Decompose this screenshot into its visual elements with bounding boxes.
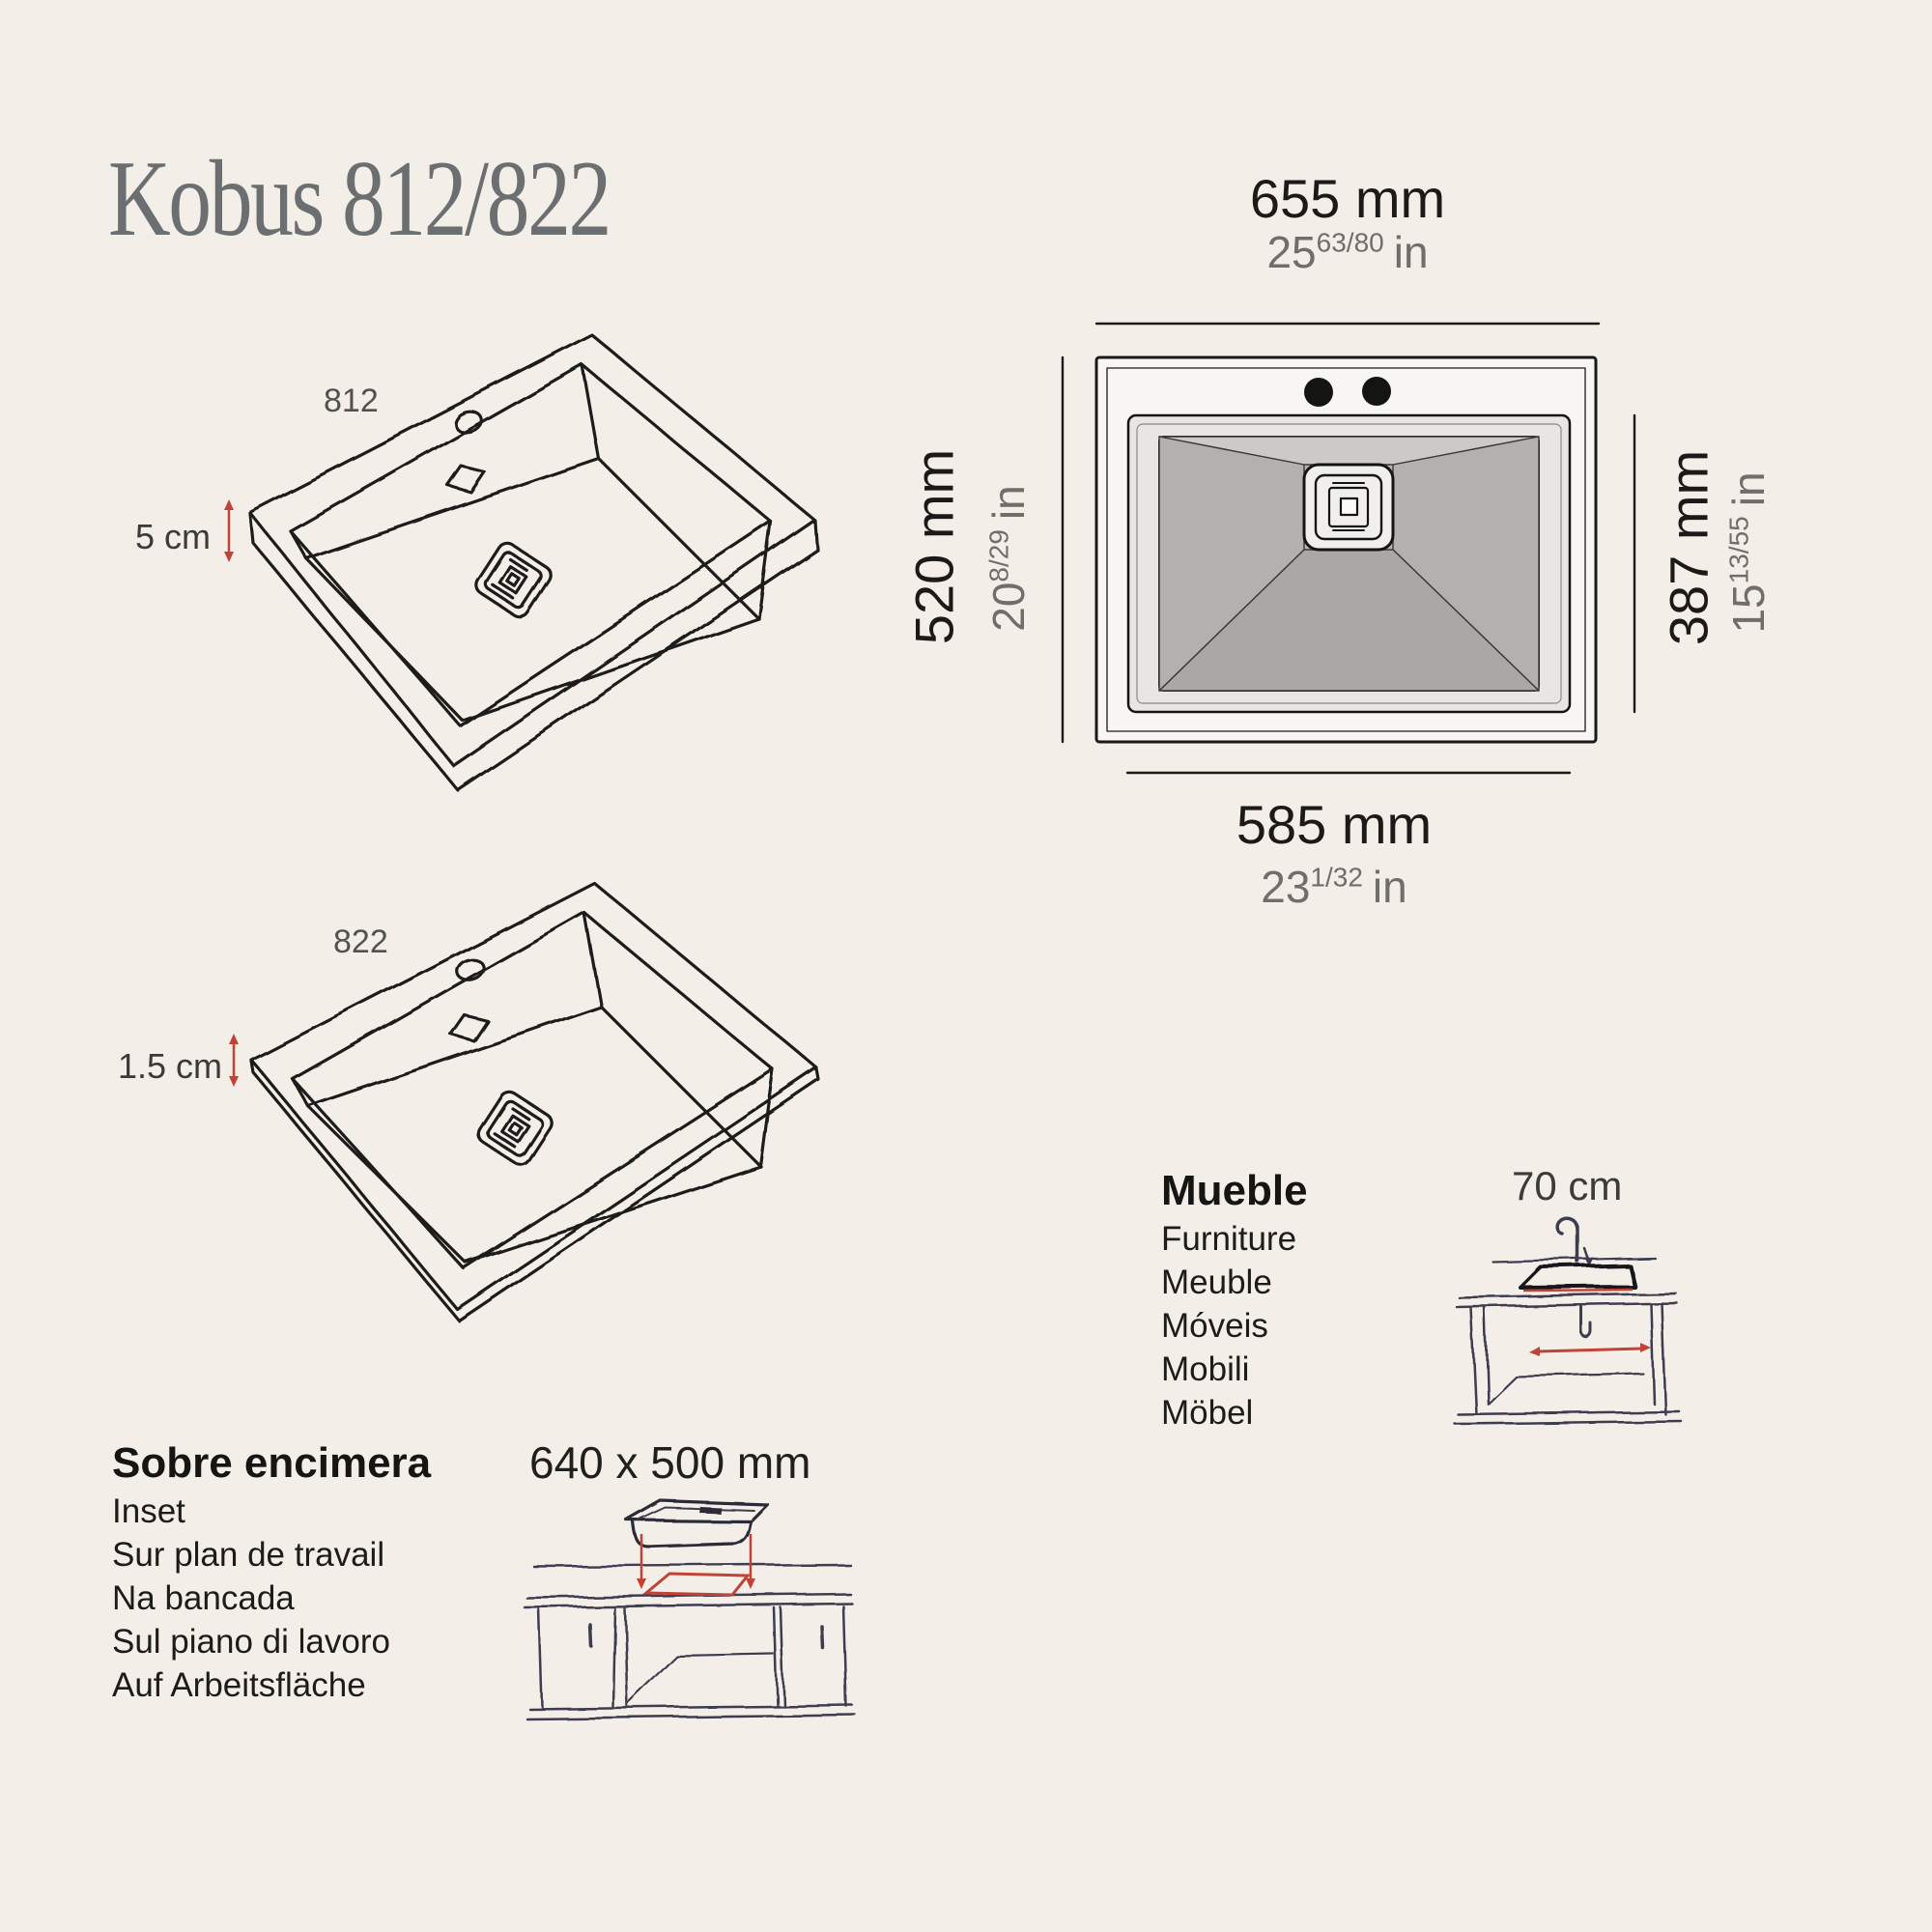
countertop-line [534,1565,850,1567]
dim-left-mm: 520 mm [903,449,966,644]
sink-profile-red-line [1523,1290,1633,1291]
left-door-handle [590,1625,591,1646]
edge-height-822: 1.5 cm [97,1046,222,1087]
furniture-heading: Mueble [1161,1167,1308,1215]
overflow-slot-icon [448,467,485,493]
top-view-diagram [1063,324,1634,773]
inset-item: Inset [112,1490,390,1533]
inset-item: Sur plan de travail [112,1533,390,1577]
dim-bottom-mm: 585 mm [1097,793,1571,856]
dim-top-mm: 655 mm [1096,167,1599,230]
furniture-width-label: 70 cm [1512,1163,1622,1209]
cabinet-interior [1488,1374,1643,1404]
inset-item: Auf Arbeitsfläche [112,1663,390,1707]
cabinet-top [1457,1293,1677,1307]
furniture-item: Furniture [1161,1217,1296,1261]
drain-icon [1304,465,1393,550]
faucet-hole-icon [1362,377,1391,406]
cabinet-opening [624,1607,777,1706]
model-label-812: 812 [324,383,379,420]
right-door-handle [822,1627,823,1648]
height-arrow-822 [229,1034,239,1087]
inset-heading: Sobre encimera [112,1439,431,1488]
edge-band-822 [251,1061,818,1321]
furniture-item: Móveis [1161,1304,1296,1348]
dim-top-in: 2563/80in [1096,226,1599,278]
cabinet-right-leg [1651,1303,1665,1414]
inset-items: Inset Sur plan de travail Na bancada Sul… [112,1490,390,1707]
cutout-size-label: 640 x 500 mm [529,1436,810,1489]
model-label-822: 822 [333,923,388,961]
dim-right-mm: 387 mm [1658,450,1720,645]
faucet-icon [1558,1219,1578,1263]
furniture-sketch [1455,1219,1681,1424]
cabinet-left-leg [1471,1307,1488,1414]
countertop-line [1492,1258,1655,1262]
edge-band-812 [249,513,816,790]
cabinet-bottom [1455,1411,1681,1424]
drain-pipe-icon [1581,1307,1591,1337]
furniture-item: Meuble [1161,1261,1296,1304]
rim-inner-822 [293,913,773,1268]
cabinet-right-door [781,1606,846,1706]
dim-left-in: 208/29in [982,485,1035,631]
dim-right-in: 1513/55in [1722,471,1775,633]
furniture-width-arrow [1523,1290,1651,1356]
height-arrow-812 [224,499,234,562]
dim-bottom-in: 231/32in [1097,861,1571,913]
furniture-items: Furniture Meuble Móveis Mobili Möbel [1161,1217,1296,1435]
faucet-hole-icon [1304,378,1333,407]
inset-item: Sul piano di lavoro [112,1620,390,1663]
drain-icon [473,540,554,620]
furniture-item: Mobili [1161,1348,1296,1391]
cutout-outline [646,1574,748,1595]
drain-icon [475,1089,555,1169]
sink-profile [1520,1265,1634,1288]
inset-sink-bowl [633,1520,750,1547]
cabinet-interior [628,1654,773,1703]
inset-sketch [525,1500,855,1719]
cabinet-bottom [526,1705,855,1719]
edge-height-812: 5 cm [97,517,211,557]
page-title: Kobus 812/822 [108,145,610,253]
cabinet-top [525,1594,852,1607]
furniture-item: Möbel [1161,1391,1296,1435]
inset-item: Na bancada [112,1577,390,1620]
inset-sink-inner-line [638,1507,753,1520]
inset-sink-slot [698,1506,721,1513]
cabinet-left-door [539,1607,614,1707]
overflow-slot-icon [450,1014,487,1040]
